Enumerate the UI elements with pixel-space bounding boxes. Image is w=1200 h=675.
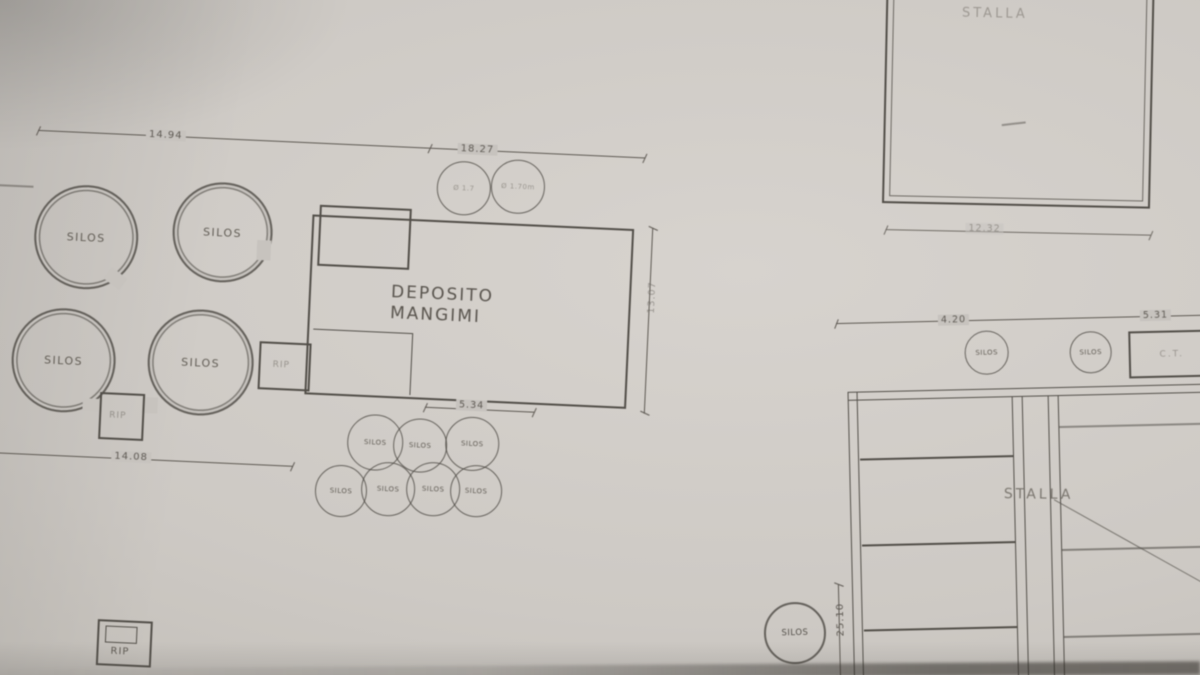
dimension-label: 5.31 (1140, 309, 1171, 321)
scanned-site-plan: 14.94 18.27 SILOS SILOS SILOS SILOS RIP … (0, 0, 1200, 675)
partition-line (1064, 632, 1200, 637)
corridor-wall (1012, 396, 1029, 675)
ct-room: C.T. (1128, 330, 1200, 379)
partition-line (862, 541, 1015, 546)
silo-circle-small: SILOS (1069, 331, 1112, 374)
partition-line (860, 455, 1013, 460)
diagonal-line (1054, 499, 1200, 588)
stalla-wall-left (848, 392, 865, 675)
silo-label: SILOS (975, 348, 998, 357)
partition-line (864, 626, 1017, 631)
partition-line (1062, 546, 1200, 551)
silo-label: SILOS (1079, 348, 1102, 357)
ct-room-label: C.T. (1159, 349, 1184, 360)
silo-circle-small: SILOS (964, 330, 1009, 375)
stalla-main-complex: 4.20 5.31 SILOS SILOS C.T. STALLA SILOS … (0, 0, 1200, 675)
dimension-label: 4.20 (938, 314, 969, 326)
silo-label: SILOS (781, 628, 808, 639)
stalla-wall-top (848, 383, 1200, 400)
silo-circle-single: SILOS (763, 601, 826, 664)
stalla-main-label: STALLA (1004, 486, 1074, 503)
dimension-label: 25.10 (834, 588, 846, 650)
corridor-wall (1048, 395, 1065, 675)
partition-line (1059, 423, 1200, 428)
